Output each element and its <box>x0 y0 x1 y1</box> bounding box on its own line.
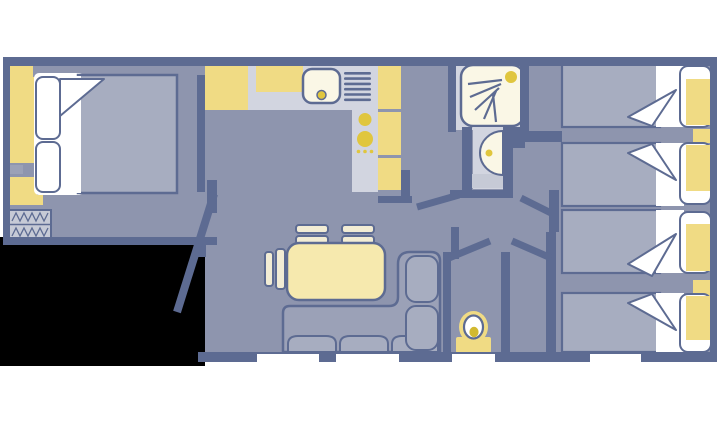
wall-wc-right <box>501 252 510 352</box>
side-chair-seat <box>276 249 285 289</box>
window <box>452 354 495 365</box>
shower-head <box>505 71 517 83</box>
wall-right <box>710 57 717 362</box>
basin-base <box>471 174 503 188</box>
head-shelf <box>693 129 710 143</box>
kitchen-cabinet <box>205 64 248 110</box>
pillow-accent <box>686 296 711 340</box>
wall-bedrooms-west-lower <box>546 232 556 352</box>
sofa-cushion <box>406 256 438 302</box>
wall-basin-right-block <box>503 127 525 148</box>
window <box>336 354 399 365</box>
wall-top <box>3 57 717 66</box>
wall-basin-right <box>503 148 513 190</box>
entrance-steps <box>9 210 51 239</box>
pillow <box>36 77 60 139</box>
tall-cabinet <box>378 158 401 190</box>
wall-kitchen-stub <box>401 170 410 203</box>
floorplan-image <box>0 0 720 425</box>
basin-drain <box>486 150 493 157</box>
pillow-accent <box>686 145 711 191</box>
window <box>257 354 319 365</box>
wall-cabinet <box>256 64 303 92</box>
dining-table <box>287 243 385 300</box>
tall-cabinet <box>378 112 401 155</box>
floorplan-canvas <box>0 0 720 425</box>
chair-back <box>296 225 328 233</box>
window <box>590 354 641 365</box>
wall-shower-east <box>520 62 529 132</box>
pillow-accent <box>686 79 711 125</box>
side-chair-back <box>265 252 273 286</box>
pillow-accent <box>686 224 711 271</box>
wall-shower-west <box>448 62 456 132</box>
toilet-seat-dot <box>469 327 478 337</box>
wall-basin-left <box>462 127 472 190</box>
wall-left <box>3 57 10 245</box>
sink-drain <box>317 91 326 100</box>
chair-back <box>342 225 374 233</box>
sofa-cushion <box>288 336 336 352</box>
double-bed-blanket <box>78 75 177 193</box>
sofa-cushion <box>406 306 438 350</box>
wardrobe <box>10 77 38 163</box>
bedside-unit <box>10 165 23 174</box>
wall-entrance <box>5 237 217 245</box>
tall-cabinet <box>378 64 401 109</box>
exterior-cutout <box>0 237 205 366</box>
sofa-cushion <box>340 336 388 352</box>
pillow <box>36 142 60 192</box>
wall-wc-left <box>443 252 451 352</box>
wall-bar-east <box>525 131 562 142</box>
wall-bedroom-right <box>197 75 205 192</box>
